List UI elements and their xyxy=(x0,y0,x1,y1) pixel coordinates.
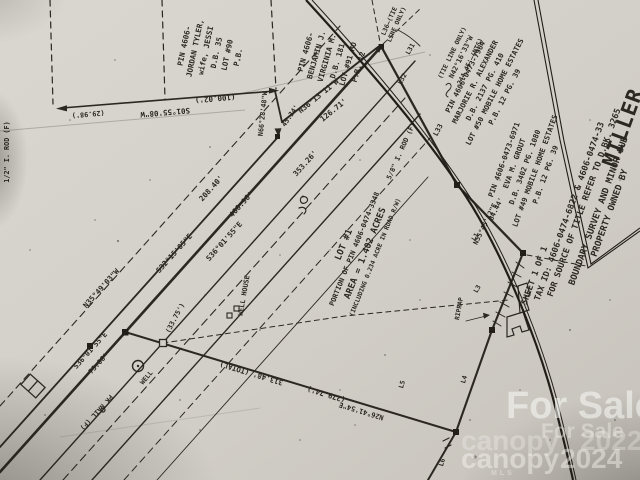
watermark-mls: MLS xyxy=(491,470,515,477)
watermark-canopy-2024-year: 2024 xyxy=(560,443,623,474)
open-monument xyxy=(160,340,167,347)
well-symbol-center xyxy=(137,365,139,367)
survey-plat-photo: { "labels": { "bearing_s01": "S01°55'08\… xyxy=(0,0,640,480)
plat-drawing: S01°55'08"W (100.02') (29.98') 1/2" I. R… xyxy=(0,0,640,480)
